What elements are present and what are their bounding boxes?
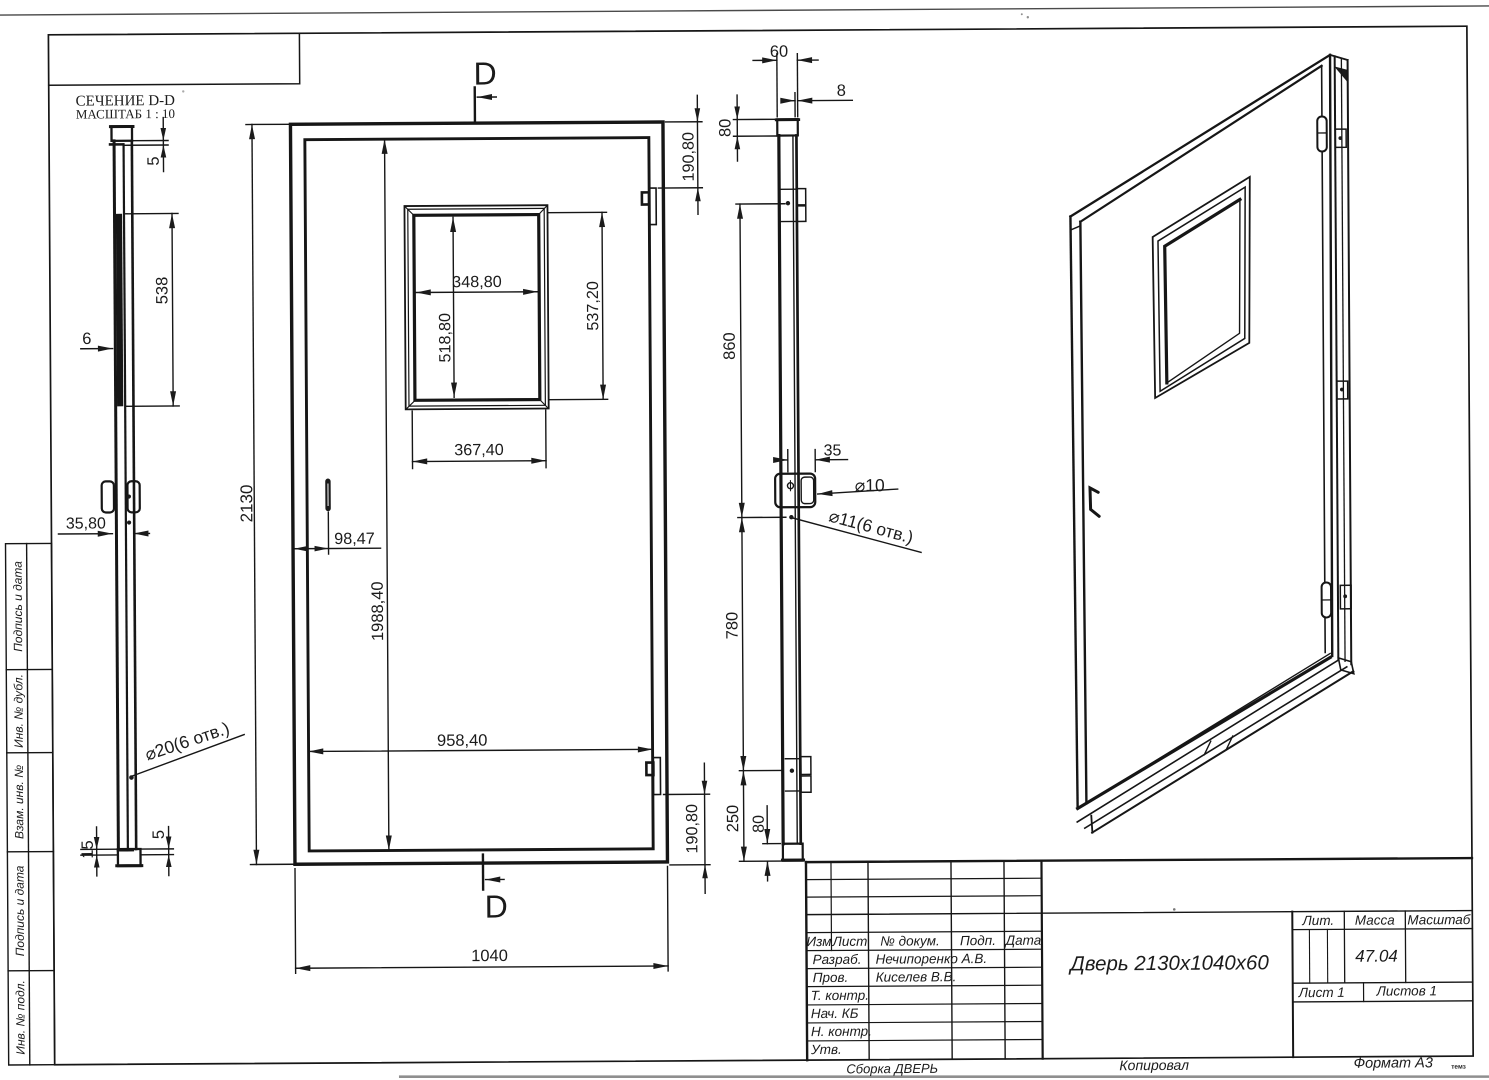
svg-text:8: 8 [837, 82, 846, 100]
svg-text:860: 860 [721, 332, 739, 360]
svg-text:348,80: 348,80 [452, 273, 502, 291]
svg-text:2130: 2130 [237, 485, 256, 523]
svg-text:МАСШТАБ 1 : 10: МАСШТАБ 1 : 10 [76, 106, 175, 122]
svg-text:Т. контр.: Т. контр. [811, 988, 869, 1003]
svg-text:Лист 1: Лист 1 [1298, 985, 1345, 1000]
svg-text:1040: 1040 [471, 947, 508, 965]
svg-text:Разраб.: Разраб. [813, 952, 862, 967]
svg-text:Н. контр.: Н. контр. [811, 1024, 872, 1039]
svg-text:Лист: Лист [832, 934, 868, 949]
svg-text:190,80: 190,80 [680, 132, 698, 182]
svg-text:537,20: 537,20 [584, 281, 602, 331]
svg-text:Подп.: Подп. [960, 933, 996, 948]
svg-text:Подпись и дата: Подпись и дата [12, 865, 27, 956]
svg-text:98,47: 98,47 [334, 530, 375, 548]
svg-text:Листов 1: Листов 1 [1376, 983, 1438, 998]
svg-text:Сборка ДВЕРЬ: Сборка ДВЕРЬ [846, 1061, 938, 1077]
svg-text:780: 780 [723, 612, 741, 640]
svg-text:250: 250 [724, 805, 742, 833]
svg-text:538: 538 [153, 277, 171, 305]
svg-text:⌀10: ⌀10 [855, 475, 885, 495]
svg-text:Инв. № подл.: Инв. № подл. [13, 980, 27, 1055]
svg-text:367,40: 367,40 [454, 441, 504, 459]
svg-text:5: 5 [150, 830, 168, 839]
svg-text:15: 15 [79, 840, 97, 858]
svg-text:Нач. КБ: Нач. КБ [811, 1006, 859, 1021]
svg-text:35,80: 35,80 [66, 515, 106, 532]
svg-text:35: 35 [824, 442, 842, 459]
svg-text:темз: темз [1451, 1064, 1466, 1071]
svg-text:Взам. инв. №: Взам. инв. № [12, 765, 26, 839]
svg-text:5: 5 [145, 156, 163, 165]
svg-text:⌀20(6 отв.): ⌀20(6 отв.) [142, 718, 232, 765]
svg-text:Киселев В.В.: Киселев В.В. [876, 969, 957, 984]
svg-text:Подпись и дата: Подпись и дата [11, 561, 26, 652]
svg-text:Масса: Масса [1355, 913, 1395, 928]
svg-text:D: D [485, 888, 508, 924]
svg-text:80: 80 [751, 815, 768, 833]
svg-text:Изм: Изм [806, 934, 831, 949]
svg-text:958,40: 958,40 [437, 732, 488, 750]
svg-text:60: 60 [770, 43, 788, 61]
svg-text:Утв.: Утв. [810, 1042, 842, 1057]
svg-text:Инв. № дубл.: Инв. № дубл. [11, 674, 25, 748]
svg-text:Формат А3: Формат А3 [1353, 1055, 1432, 1071]
svg-text:Дверь 2130х1040х60: Дверь 2130х1040х60 [1068, 951, 1269, 975]
svg-text:1988,40: 1988,40 [369, 581, 387, 641]
svg-text:Лит.: Лит. [1301, 913, 1334, 928]
svg-text:190,80: 190,80 [683, 804, 701, 854]
svg-text:47.04: 47.04 [1355, 947, 1398, 966]
svg-text:D: D [473, 56, 496, 92]
svg-text:6: 6 [82, 330, 91, 348]
svg-text:Масштаб: Масштаб [1407, 912, 1471, 927]
svg-text:Копировал: Копировал [1119, 1057, 1189, 1073]
svg-text:Дата: Дата [1004, 933, 1042, 948]
svg-text:518,80: 518,80 [436, 313, 454, 363]
svg-text:Пров.: Пров. [813, 970, 849, 985]
svg-text:80: 80 [716, 119, 734, 137]
svg-text:№ докум.: № докум. [880, 933, 940, 948]
svg-text:⌀11(6 отв.): ⌀11(6 отв.) [827, 506, 916, 548]
svg-text:Нечипоренко А.В.: Нечипоренко А.В. [876, 951, 988, 967]
